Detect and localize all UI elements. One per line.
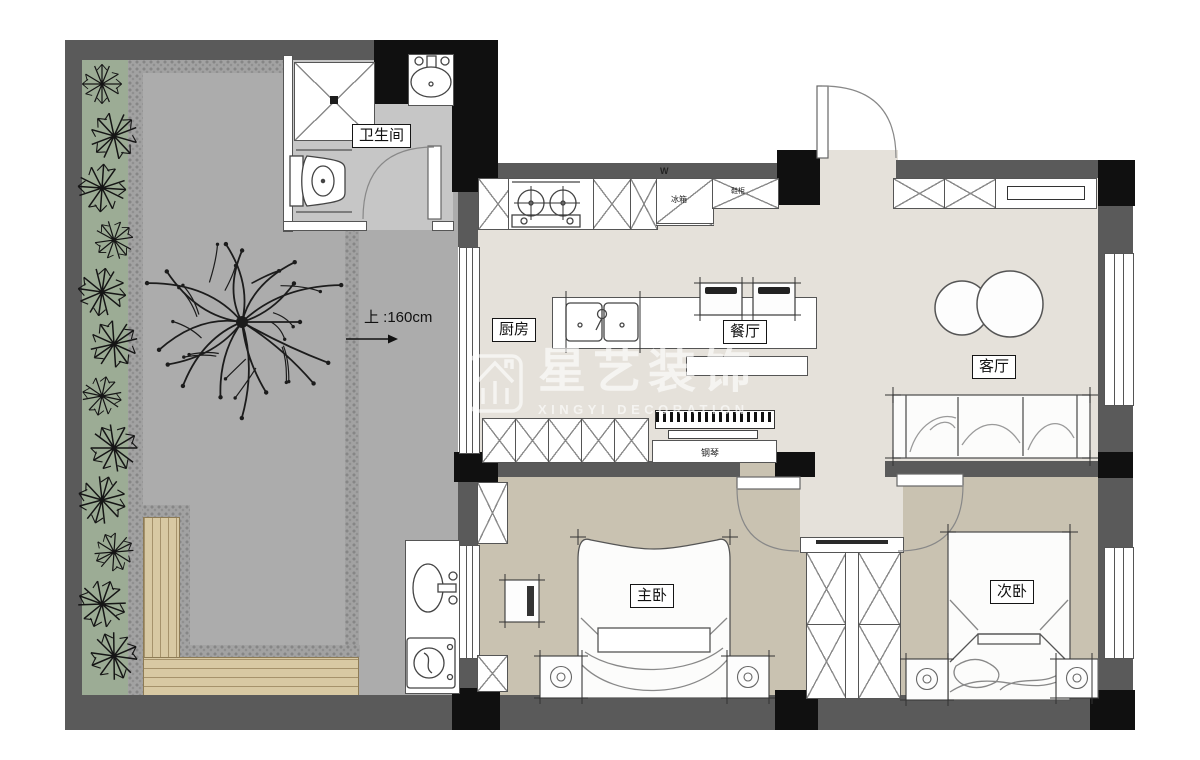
wall-entry-right: [896, 160, 1098, 178]
column-right-mid: [1098, 452, 1133, 478]
storage-cabinet: [482, 418, 517, 463]
laundry-floor: [405, 540, 460, 694]
kitchen-cabinet: [592, 178, 632, 230]
closet-sliding-track: [816, 540, 888, 544]
shoe-cabinet: [712, 178, 779, 209]
wardrobe-left-upper: [806, 552, 847, 626]
shower-drain: [330, 96, 338, 104]
room-label-master-bedroom: 主卧: [630, 584, 674, 608]
wall-left-stub-b: [458, 482, 478, 545]
window-laundry-west: [459, 545, 480, 659]
wall-bottom: [65, 695, 1135, 730]
wall-lower-b: [885, 461, 1098, 477]
room-label-kitchen: 厨房: [492, 318, 536, 342]
room-label-living: 客厅: [972, 355, 1016, 379]
column-top-right: [1098, 160, 1135, 206]
wardrobe-west-upper: [477, 482, 508, 544]
piano-keys: [655, 410, 775, 429]
stair-note: 上 :160cm: [364, 306, 432, 327]
column-bath-right: [452, 40, 498, 192]
wardrobe-right-lower: [858, 624, 901, 699]
bathroom-basin-counter: [408, 54, 454, 106]
wood-deck-vertical: [143, 517, 180, 659]
column-left-bottom: [452, 688, 500, 730]
room-label-second-bedroom: 次卧: [990, 580, 1034, 604]
tv-screen: [1007, 186, 1085, 200]
room-label-dining: 餐厅: [723, 320, 767, 344]
bedroom-floor: [478, 461, 1098, 695]
wardrobe-left-lower: [806, 624, 847, 699]
column-bath-top: [374, 40, 410, 104]
gravel-path-top: [128, 60, 290, 73]
bathroom-wall-bottom-b: [432, 221, 454, 231]
wall-top-courtyard: [65, 40, 375, 60]
fridge-mark: W: [660, 166, 669, 176]
gravel-deck-border-h: [178, 645, 360, 657]
entry-floor: [818, 150, 898, 180]
wall-left-stub-a: [458, 192, 478, 247]
wardrobe-west-lower: [477, 655, 508, 692]
column-hall-left: [775, 452, 815, 477]
entry-door: [817, 86, 896, 158]
dining-bench: [686, 356, 808, 376]
window-kitchen-west: [459, 247, 480, 454]
shoe-cabinet-label: 鞋柜: [731, 186, 745, 196]
wall-left-outer: [65, 40, 82, 730]
wood-deck-horizontal: [143, 657, 359, 697]
fridge-label: 冰箱: [671, 194, 687, 205]
column-entry-left: [777, 150, 820, 205]
entry-cabinet: [893, 178, 946, 209]
storage-cabinet: [614, 418, 649, 463]
gravel-deck-cap: [143, 505, 190, 517]
gravel-path-left: [128, 60, 143, 695]
storage-cabinet: [548, 418, 583, 463]
bathroom-wall-bottom-a: [283, 221, 367, 231]
wall-lower-a: [478, 461, 740, 477]
planting-strip: [82, 60, 129, 695]
wardrobe-right-upper: [858, 552, 901, 626]
wall-left-stub-c: [458, 657, 478, 690]
wall-kitchen-top: [494, 163, 777, 178]
stove-counter: [508, 178, 594, 230]
storage-cabinet: [581, 418, 616, 463]
storage-cabinet: [515, 418, 550, 463]
window-living-east: [1104, 253, 1134, 406]
piano-label: 钢琴: [701, 446, 719, 459]
gravel-path-mid: [345, 228, 359, 695]
piano-music-rest: [668, 430, 758, 439]
column-bottom-right: [1090, 690, 1135, 730]
entry-cabinet: [944, 178, 997, 209]
floor-plan: 冰箱 W 鞋柜 钢琴: [0, 0, 1200, 760]
kitchen-island: [552, 297, 817, 349]
window-bedroom2-east: [1104, 547, 1134, 659]
room-label-bathroom: 卫生间: [352, 124, 411, 148]
kitchen-cabinet: [630, 178, 658, 230]
closet-divider: [845, 552, 859, 699]
bathroom-wall-left: [283, 55, 293, 232]
